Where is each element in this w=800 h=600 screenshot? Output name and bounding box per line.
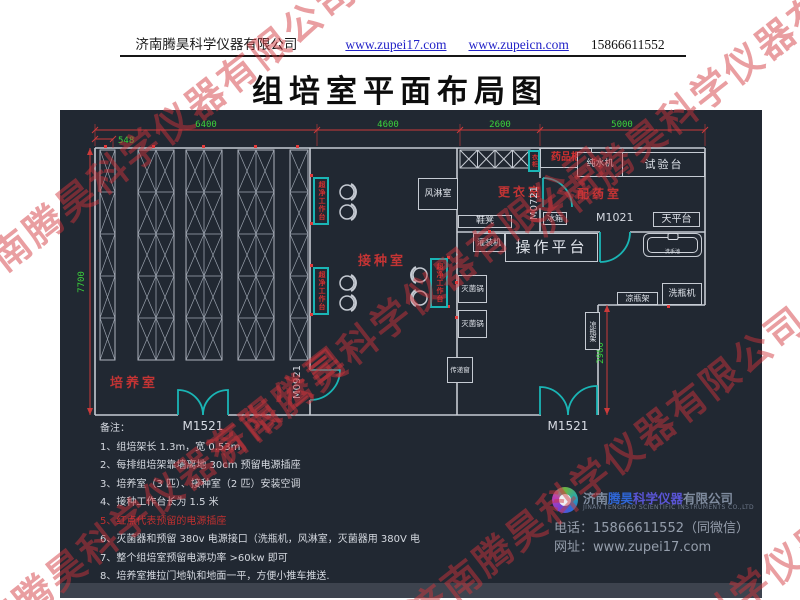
stools [340,184,427,311]
culture-racks [100,150,308,360]
header: 济南腾昊科学仪器有限公司www.zupei17.comwww.zupeicn.c… [0,33,800,53]
note-line: 7、整个组培室预留电源功率 >60kw 即可 [100,550,420,569]
bottle-rack-vertical: 凉瓶架 [585,312,600,350]
note-line: 8、培养室推拉门地轨和地面一平，方便小推车推送. [100,568,420,587]
pass-window: 传递窗 [447,357,473,383]
note-line: 6、灭菌器和预留 380v 电源接口（洗瓶机，风淋室，灭菌器用 380V 电 [100,531,420,550]
room-label-inoculation: 接种室 [358,250,406,269]
fridge: 冰箱 [543,212,567,225]
filling-machine: 灌装机 [473,233,505,252]
page-title: 组培室平面布局图 [0,66,800,111]
dim-7700: 7700 [77,271,87,293]
note-line: 1、组培架长 1.3m，宽 0.53m [100,439,420,458]
dim-6400: 6400 [195,120,217,130]
shoe-bench: 鞋凳 [458,215,512,228]
note-line: 2、每排组培架靠墙离地 30cm 预留电源插座 [100,457,420,476]
balance-table: 天平台 [653,212,700,227]
water-purifier: 纯水机 [577,152,623,177]
note-line: 5、红点代表预留的电源插座 [100,513,420,532]
company-logo-icon [552,487,578,513]
note-line: 4、接种工作台长为 1.5 米 [100,494,420,513]
door-label-m0921: M0921 [291,362,303,402]
door-label-m1521-right: M1521 [538,419,598,433]
notes-block: 备注： 1、组培架长 1.3m，宽 0.53m 2、每排组培架靠墙离地 30cm… [100,420,420,587]
footer-website: 网址：www.zupei17.com [554,536,711,555]
notes-heading: 备注： [100,420,420,439]
faucet-icon [667,233,678,240]
dim-5000: 5000 [611,120,633,130]
clean-bench-1: 超净工作台 [313,177,329,225]
clean-bench-2: 超净工作台 [313,267,329,315]
test-bench-label: 试验台 [645,159,684,170]
dim-4600: 4600 [377,120,399,130]
footer-company-en: JINAN TENGHAO SCIENTIFIC INSTRUMENTS CO.… [583,504,754,511]
door-label-m0721: M0721 [528,183,540,223]
bottle-rack-horizontal: 凉瓶架 [617,292,658,305]
dim-548: 548 [118,136,134,146]
footer-phone: 电话：15866611552（同微信） [554,517,749,536]
sink-label: 洗手池 [644,250,701,255]
link-zupeicn[interactable]: www.zupeicn.com [469,37,569,52]
header-phone: 15866611552 [591,37,665,52]
room-label-culture: 培养室 [110,372,158,391]
clean-bench-3: 超净工作台 [430,258,448,308]
hand-wash-sink: 洗手池 [643,233,702,257]
sterilizer-1: 灭菌锅 [458,275,487,303]
air-shower: 风淋室 [418,178,458,210]
test-bench-counter: 纯水机 试验台 [577,152,705,177]
dim-2600: 2600 [489,120,511,130]
room-label-dispensing: 配药室 [577,185,622,202]
door-label-m1021: M1021 [596,211,634,224]
header-company-name: 济南腾昊科学仪器有限公司 [135,37,297,52]
note-line: 3、培养室（3 匹）、接种室（2 匹）安装空调 [100,476,420,495]
operation-platform: 操作平台 [505,233,598,262]
locker-cabinets [460,150,530,168]
header-divider [120,55,686,57]
bottle-washer: 洗瓶机 [662,283,702,305]
wardrobe-cabinet: 衣柜 [528,150,540,172]
page: 济南腾昊科学仪器有限公司www.zupei17.comwww.zupeicn.c… [0,0,800,600]
sterilizer-2: 灭菌锅 [458,310,487,338]
link-zupei17[interactable]: www.zupei17.com [345,37,446,52]
